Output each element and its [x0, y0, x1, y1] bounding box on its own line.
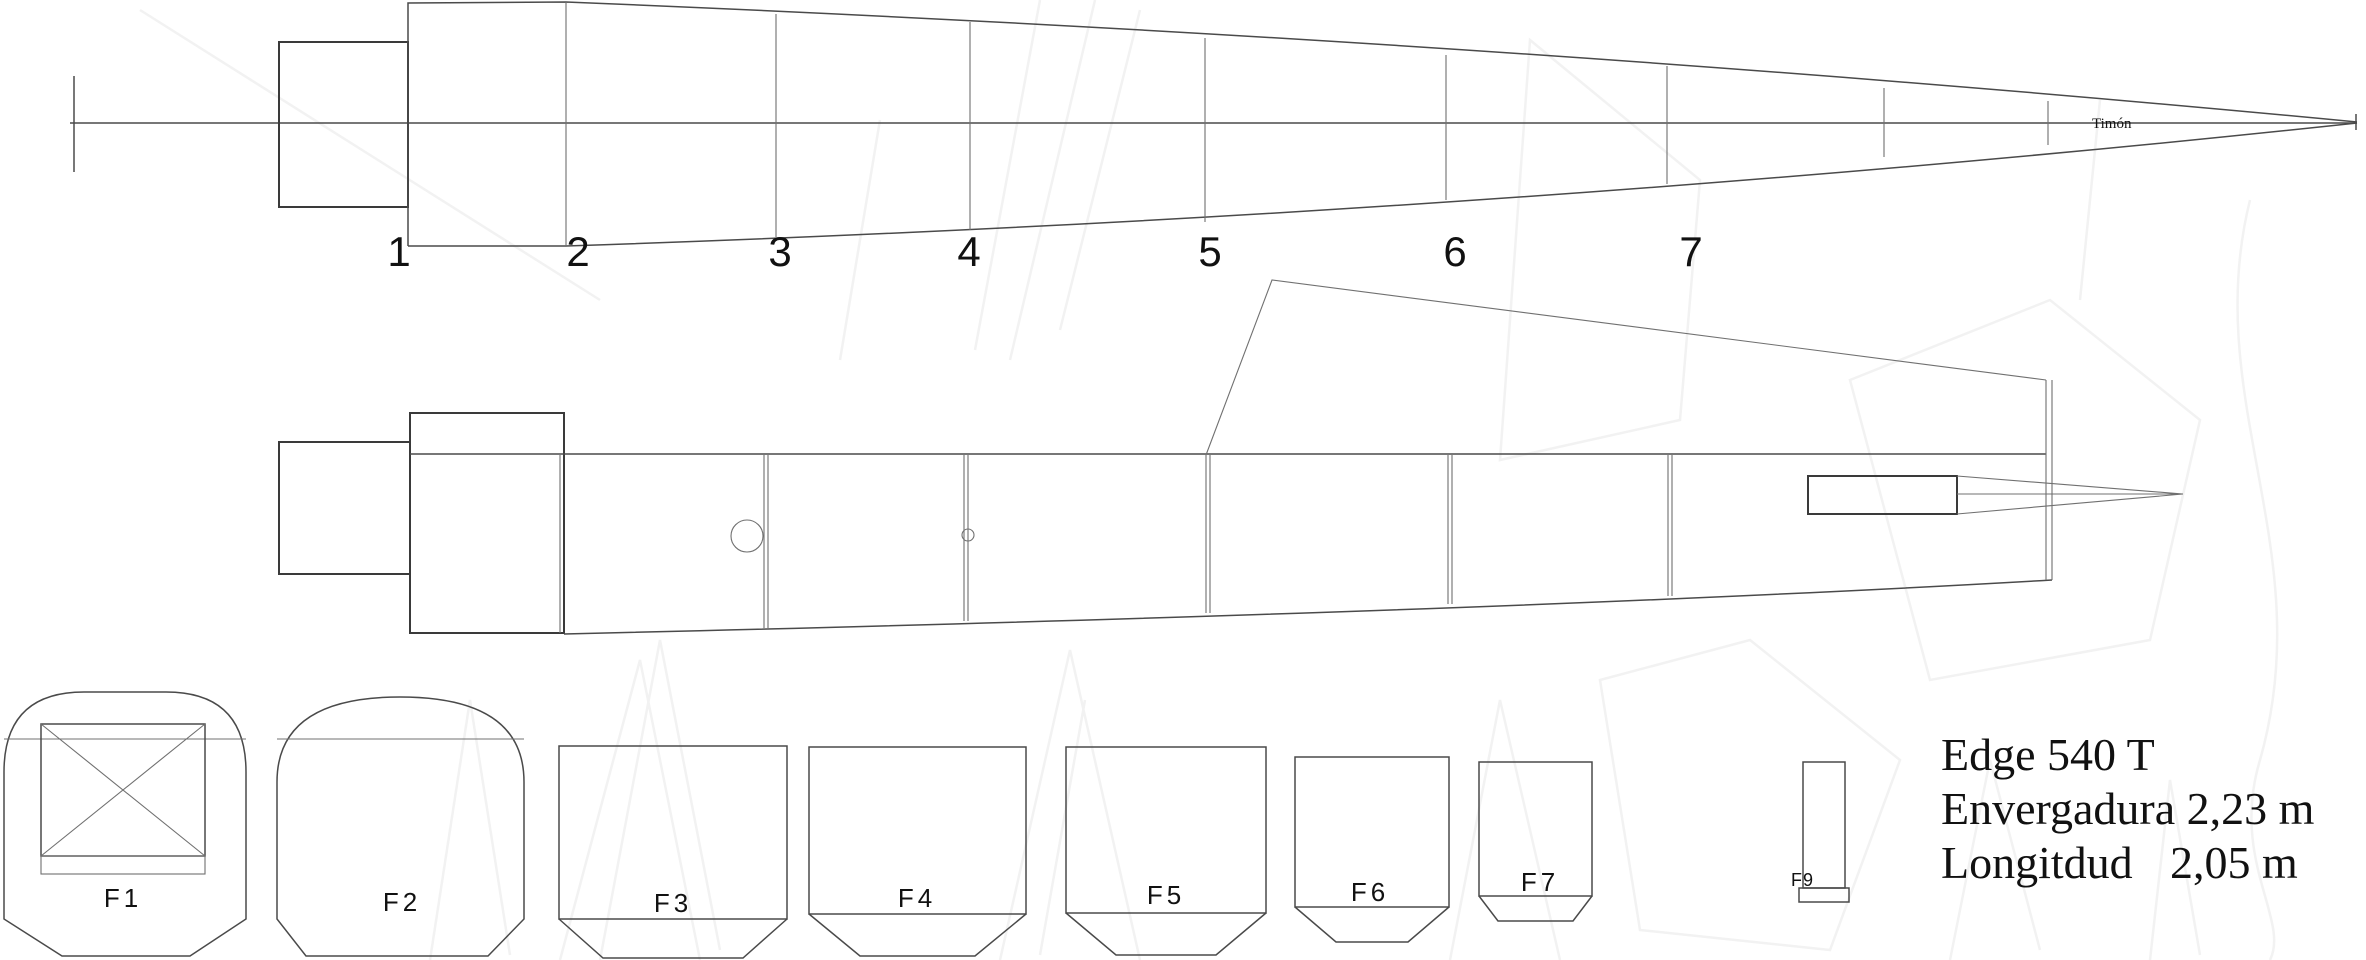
former-f2-outline: [277, 697, 524, 956]
rudder-label: Timón: [2092, 116, 2132, 132]
former-sections: F1 F2 F3 F4 F5 F6: [4, 692, 1849, 958]
spinner-box: [279, 442, 410, 574]
length-label: Longitdud: [1941, 837, 2133, 888]
station-number-3: 3: [768, 228, 791, 275]
former-label: F1: [104, 883, 142, 913]
bottom-outline: [564, 580, 2052, 634]
firewall-base-band: [41, 856, 205, 874]
plan-sheet: 1 2 3 4 5 6 7 Timón: [0, 0, 2366, 960]
firewall-cross-brace: [41, 724, 205, 856]
former-f3-chamfer: [559, 919, 787, 958]
length-value: 2,05 m: [2170, 837, 2298, 888]
former-f3: F3: [559, 746, 787, 958]
station-number-4: 4: [957, 228, 980, 275]
assembled-fuselage-view: [279, 280, 2183, 634]
former-f1: F1: [4, 692, 246, 956]
station-number-2: 2: [566, 228, 589, 275]
fuselage-frame-side-view: 1 2 3 4 5 6 7 Timón: [70, 2, 2357, 275]
title-block: Edge 540 T Envergadura 2,23 m Longitdud …: [1941, 729, 2315, 888]
station-numbers: 1 2 3 4 5 6 7: [387, 228, 1702, 275]
station-number-1: 1: [387, 228, 410, 275]
former-f6-chamfer: [1295, 907, 1449, 942]
cowl-box: [410, 413, 564, 633]
wingspan-line: Envergadura 2,23 m: [1941, 783, 2315, 834]
former-label: F4: [898, 883, 936, 913]
former-f9-base: [1799, 888, 1849, 902]
model-name: Edge 540 T: [1941, 729, 2155, 780]
tailwheel-bracket: [1808, 476, 1957, 514]
fuselage-top-outline: [408, 2, 2357, 246]
technical-drawing: 1 2 3 4 5 6 7 Timón: [0, 0, 2366, 960]
engine-cowl-box: [279, 42, 408, 207]
fuselage-bottom-outline: [408, 123, 2357, 246]
former-label: F6: [1351, 877, 1389, 907]
former-f4: F4: [809, 747, 1026, 956]
former-f9: F9: [1791, 762, 1849, 902]
former-f5-chamfer: [1066, 913, 1266, 955]
fin-outline: [1206, 280, 2046, 455]
wing-dowel-hole: [731, 520, 763, 552]
former-f4-chamfer: [809, 914, 1026, 956]
former-f5: F5: [1066, 747, 1266, 955]
former-label: F3: [654, 888, 692, 918]
former-f2: F2: [277, 697, 524, 956]
former-f7-chamfer: [1479, 896, 1592, 921]
former-label: F7: [1521, 867, 1559, 897]
station-number-6: 6: [1443, 228, 1466, 275]
tailwheel-spring: [1957, 476, 2183, 514]
station-lines: [566, 2, 2048, 246]
station-number-7: 7: [1679, 228, 1702, 275]
former-f7: F7: [1479, 762, 1592, 921]
former-label: F9: [1791, 870, 1814, 890]
former-position-lines: [764, 455, 1672, 628]
former-label: F5: [1147, 880, 1185, 910]
former-f6: F6: [1295, 757, 1449, 942]
station-number-5: 5: [1198, 228, 1221, 275]
former-label: F2: [383, 887, 421, 917]
tailwheel-assembly: [1808, 476, 2183, 514]
